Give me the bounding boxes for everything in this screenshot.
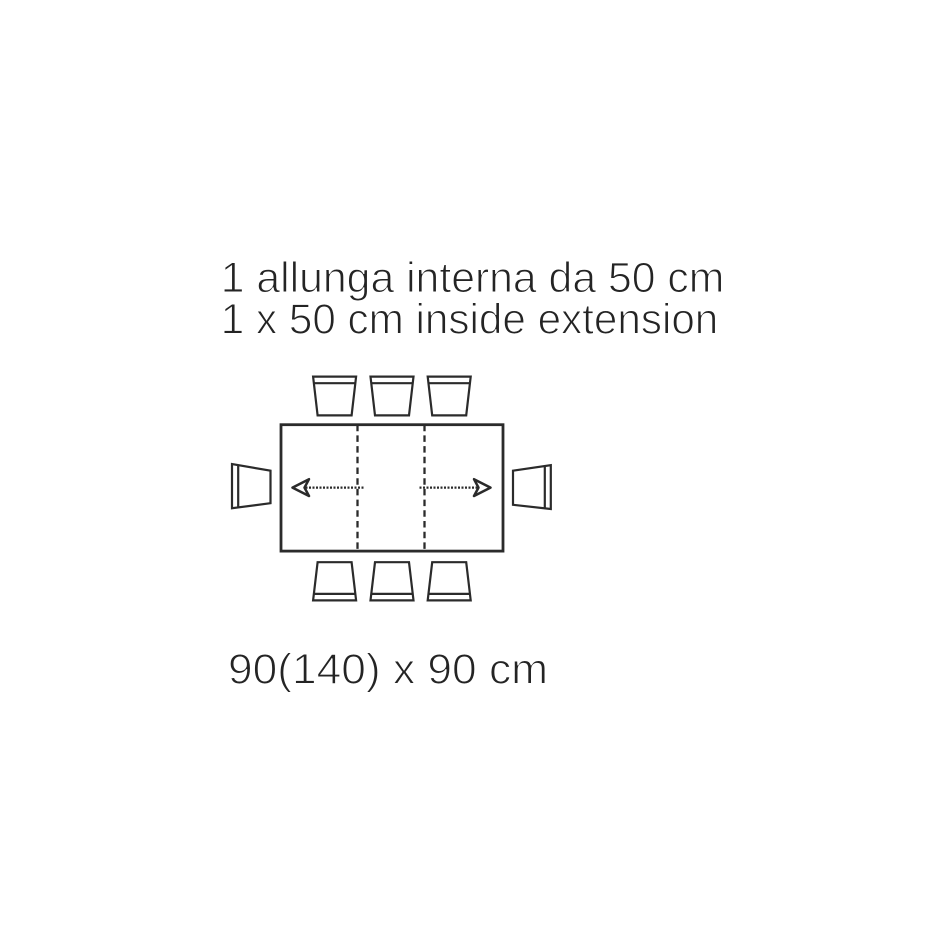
svg-text:90(140) x 90 cm: 90(140) x 90 cm xyxy=(228,646,548,694)
svg-text:1 x 50 cm inside extension: 1 x 50 cm inside extension xyxy=(221,296,719,344)
